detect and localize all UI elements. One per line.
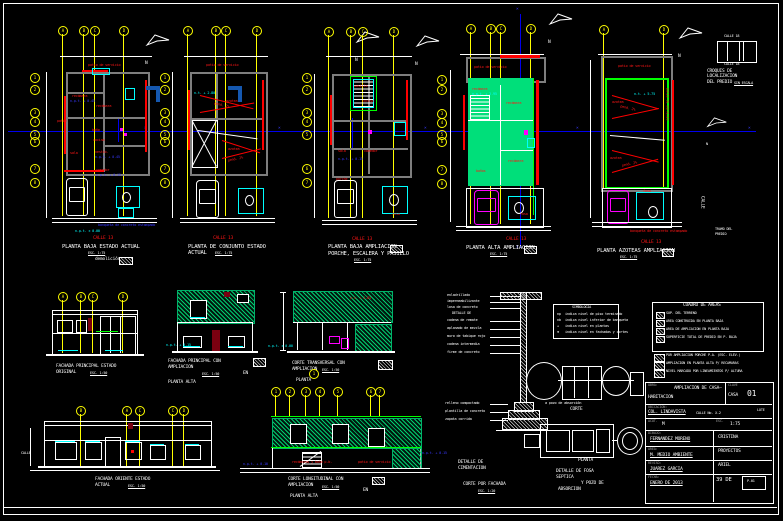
row-divider [645, 430, 772, 431]
sill-line [190, 317, 205, 318]
grid-bubble: A [324, 27, 334, 37]
grid-bubble: C [496, 24, 506, 34]
scale-value: 1:75 [730, 423, 740, 428]
wall-line [463, 95, 465, 150]
hatch-swatch [119, 257, 133, 265]
wall-demolish [188, 90, 190, 150]
elevation-title: ORIGINAL [56, 371, 76, 376]
area-table-title: CUADRO DE AREAS [683, 304, 721, 309]
sheet-count: 39 DE [716, 478, 732, 484]
arrow-line [96, 331, 118, 332]
street-label: CALLE 13 [506, 238, 526, 243]
field-label: OBRA: [648, 384, 658, 388]
grid-bubble: 4 [302, 117, 312, 127]
annotation: muro de tabique rojo [447, 335, 485, 339]
wall-demolish [262, 80, 264, 150]
grid-bubble: D [389, 27, 399, 37]
beam [224, 292, 230, 297]
cell-divider [713, 430, 714, 502]
area-row: AREA CONSTRUIDA EN PLANTA BAJA [666, 320, 723, 324]
field-label: DIBUJO: [648, 432, 661, 436]
elevation-title: FACHADA PRINCIPAL ESTADO [56, 365, 116, 370]
roof-line [52, 310, 138, 311]
wall-line [120, 316, 121, 353]
section-scale: ESC. 1:50 [322, 369, 339, 373]
street-line [456, 226, 551, 227]
area-row: SUP. DEL TERRENO [666, 312, 697, 316]
grid-bubble: 7 [30, 164, 40, 174]
dim-line [314, 74, 315, 218]
plan-title: ACTUAL [188, 251, 207, 257]
legend-key: ⊕ [557, 331, 559, 335]
wall-hatch [521, 292, 526, 402]
elevation-scale: ESC. 1:50 [128, 485, 145, 489]
sketch-line [743, 41, 744, 61]
room-label: azotea [610, 157, 621, 161]
field-label: CLAVE [728, 384, 738, 388]
ground-line [287, 351, 395, 353]
annotation: zapata corrida [445, 418, 472, 422]
department: M. MEDIO AMBIENTE [650, 454, 693, 459]
area-swatch [656, 328, 665, 335]
north-label: N [355, 58, 358, 63]
plan-title: PLANTA BAJA ESTADO ACTUAL [62, 245, 140, 251]
wall-line [322, 323, 323, 350]
grid-bubble: 1 [302, 73, 312, 83]
section-title: AMPLIACION [288, 484, 313, 489]
wall-line [297, 323, 298, 350]
pozo-circle-inner [622, 432, 638, 450]
area-swatch [654, 354, 665, 362]
fosa-label: fosa [392, 213, 400, 217]
grid-line [328, 35, 329, 218]
grid-bubble: 8 [30, 178, 40, 188]
grid-line [319, 395, 320, 416]
grid-bubble: 5 [333, 387, 343, 397]
grid-line [379, 395, 380, 416]
furniture [329, 336, 340, 344]
wall-line [500, 55, 540, 58]
street-line [322, 224, 417, 225]
grid-bubble: A [183, 26, 193, 36]
grid-bubble: B [76, 292, 86, 302]
ground-line [172, 351, 258, 353]
window [55, 442, 77, 460]
sheet-border-line [4, 507, 777, 508]
legend-text: indica nivel en plantas [565, 325, 609, 329]
floor-line [177, 322, 253, 323]
grid-bubble: D [119, 26, 129, 36]
grid-bubble: C [168, 406, 178, 416]
person-name: CRISTINA [718, 436, 738, 441]
north-label: N [706, 142, 708, 146]
tag: PLANTA ALTA [290, 495, 318, 500]
grid-bubble: 8 [437, 179, 447, 189]
leader-line [490, 337, 520, 338]
section-title: CORTE TRANSVERSAL CON [292, 362, 345, 367]
grid-line [305, 395, 306, 416]
room-label: baños [476, 170, 486, 174]
detail-title: SEPTICA [556, 476, 574, 481]
grid-bubble: 6 [160, 137, 170, 147]
leader-line [490, 404, 508, 405]
tank-line [588, 366, 589, 398]
hatch-swatch [253, 358, 266, 367]
north-label: N [145, 61, 148, 66]
grid-bubble: 4 [315, 387, 325, 397]
annotation: cadena de remate [447, 319, 478, 323]
grid-bubble: 1 [160, 73, 170, 83]
grid-bubble: 5 [302, 130, 312, 140]
room-label: azotea [228, 148, 239, 152]
sill-line [58, 350, 78, 351]
field-label: ESC. [716, 420, 724, 424]
leader-line [490, 321, 520, 322]
street-label: CALLE 13 [641, 241, 661, 246]
detail-scale: ESC. 1:20 [478, 490, 495, 494]
fixture-marker [120, 128, 123, 131]
sketch-line [739, 41, 740, 61]
plan-scale: ESC. 1:75 [620, 256, 637, 260]
tag: PLANTA ALTA [168, 381, 196, 386]
grid-bubble: 1 [30, 73, 40, 83]
room-label: baño [92, 129, 100, 133]
sheet-number: 01 [747, 390, 756, 398]
wall-line [66, 117, 146, 119]
room-label: recámara [508, 160, 523, 164]
door [88, 318, 92, 331]
window [185, 445, 201, 460]
sill-line [150, 444, 164, 445]
room-label: patio de servicio [474, 66, 506, 70]
project-title: HABITACION [648, 396, 673, 401]
legend-key: np [557, 313, 561, 317]
level-label: n.p.t. + 0.15 [338, 158, 363, 162]
street-line [180, 218, 275, 219]
wall-line [330, 95, 332, 145]
toilet [245, 195, 254, 206]
street-label: CALLE 13 [352, 238, 372, 243]
elevation-title: FACHADA ORIENTE ESTADO [95, 478, 150, 483]
cell-divider [725, 382, 726, 404]
wall-panel [237, 294, 249, 303]
area-row: NIVEL MARCADO POR LINEAMIENTOS P/ ALTURA [666, 370, 742, 374]
north-arrow-icon: N [706, 116, 728, 149]
grid-bubble: D [252, 26, 262, 36]
tank-section [630, 372, 644, 396]
grid-line [370, 395, 371, 416]
car [66, 178, 88, 216]
window [150, 445, 166, 460]
fixture [527, 138, 535, 148]
north-arrow-icon: N [678, 26, 704, 61]
street-line [592, 222, 682, 223]
location-value: COL. LINDAVISTA [648, 411, 686, 416]
elevation-scale: ESC. 1:50 [202, 373, 219, 377]
grid-bubble: C [221, 26, 231, 36]
ground-line [38, 466, 216, 468]
plan-scale: ESC. 1:75 [490, 253, 507, 257]
legend-text: indica nivel en fachadas y cortes [565, 331, 628, 335]
room-label: patio de servicio [618, 65, 650, 69]
level-label: n.p.t. ± 0.00 [75, 230, 100, 234]
sidewalk-label: banqueta de concreto estampado [98, 224, 155, 228]
level-label: n.p.t. + 0.45 [70, 100, 95, 104]
annotation: aplanado de mezcla [447, 327, 481, 331]
window [85, 442, 102, 460]
row-divider [645, 446, 772, 447]
section-title: CORTE LONGITUDINAL CON [288, 478, 343, 483]
note: PREDIO [715, 233, 726, 237]
tag: PLANTA [296, 379, 311, 384]
annotation: firme de concreto [447, 351, 479, 355]
grid-bubble: 6 [302, 164, 312, 174]
wall-line [406, 80, 408, 140]
fixture [394, 122, 406, 136]
property-line [184, 56, 268, 57]
street-label: CALLE [21, 452, 31, 456]
hatch-swatch [662, 249, 674, 257]
legend-key: nb [557, 319, 561, 323]
view-label: CORTE [570, 408, 583, 413]
grid-bubble: A [599, 25, 609, 35]
wall-line [672, 80, 674, 185]
area-swatch [654, 362, 665, 370]
annotation: cadena intermedia [447, 343, 479, 347]
tank-line [574, 366, 575, 398]
ampliacion-hatch [355, 324, 392, 352]
annotation: enladrillado [447, 294, 470, 298]
parapet-line [44, 421, 212, 422]
row-divider [645, 460, 772, 461]
project-title: AMPLIACION DE CASA— [674, 387, 722, 392]
dim-line [283, 292, 284, 351]
sheet-code: CASA [728, 394, 738, 399]
field-label: ACOT. [648, 420, 658, 424]
street-label: CALLE 13 [213, 237, 233, 242]
field-label: AREA: [648, 448, 658, 452]
wall-line [272, 448, 273, 468]
hatch-swatch [372, 477, 385, 485]
grid-bubble: 6 [437, 137, 447, 147]
wall-line [110, 316, 111, 353]
room-label: comedor [364, 150, 377, 154]
fixture-marker [368, 130, 372, 134]
tag: EN [363, 489, 368, 494]
sill-line [85, 441, 100, 442]
cad-sheet: × × × × × × × N N N N N N A B C D 1 2 3 … [0, 0, 783, 521]
annotation: relleno compactado [445, 402, 479, 406]
elevation-title: AMPLIACION [168, 366, 193, 371]
door [212, 330, 220, 351]
room-label: recámara [96, 105, 111, 109]
area-swatch [656, 336, 665, 343]
grid-bubble: A [466, 24, 476, 34]
room-label: patio de servicio [88, 64, 120, 68]
street-line [52, 218, 157, 219]
sketch-title: DEL PREDIO [707, 81, 732, 86]
sill-line [228, 346, 243, 347]
field-label: REVISO: [648, 462, 661, 466]
sketch-block [717, 41, 757, 63]
wall-line [103, 145, 146, 147]
fence-line [30, 428, 31, 466]
grid-bubble: 2 [285, 387, 295, 397]
wall-line [137, 310, 138, 354]
vent [128, 423, 133, 429]
grid-bubble: 4 [437, 118, 447, 128]
plan-title: PLANTA BAJA AMPLIACION [328, 245, 396, 251]
grid-bubble: 4 [160, 117, 170, 127]
room-label: sala [338, 150, 346, 154]
area-row: AREA DE AMPLIACION EN PLANTA BAJA [666, 328, 729, 332]
legend-title: SIMBOLOGIA [572, 306, 591, 310]
level-label: n.t. + 5.75 [634, 93, 655, 97]
leader-line [490, 345, 520, 346]
level-label: n.p.t. + 0.10 [243, 463, 268, 467]
grid-bubble: 1 [271, 387, 281, 397]
side-label: patio de servicio [665, 88, 669, 168]
wall-line [211, 421, 212, 468]
department: PROYECTOS [718, 450, 741, 455]
plan-scale: ESC. 1:75 [354, 259, 371, 263]
leader-line [490, 329, 520, 330]
north-arrow-icon: N [548, 12, 574, 47]
grid-bubble: 2 [160, 85, 170, 95]
roof-line [52, 314, 138, 315]
plan-note: demolición [95, 258, 120, 263]
dim-tick [280, 292, 286, 293]
area-row: AMPLIACION EN PLANTA ALTA P/ RECAMARAS [666, 362, 738, 366]
sketch-line [727, 41, 728, 61]
fixture [92, 68, 110, 75]
area-swatch [656, 312, 665, 319]
grid-bubble: 2 [437, 85, 447, 95]
grid-bubble: 1 [309, 369, 319, 379]
grid-bubble: A [122, 406, 132, 416]
north-label: N [678, 54, 681, 59]
view-label: PLANTA [578, 459, 593, 464]
window [57, 320, 73, 333]
property-line [598, 54, 672, 55]
room-label: cocina [93, 139, 104, 143]
grid-bubble: D [118, 292, 128, 302]
floor-line [293, 322, 391, 323]
stairs [470, 95, 490, 121]
fixture [118, 208, 134, 218]
wall-line [52, 310, 53, 354]
wall-line [216, 72, 218, 120]
grid-bubble: 7 [375, 387, 385, 397]
street-line [322, 220, 417, 221]
legend-text: indica nivel inferior de banqueta [565, 319, 628, 323]
ampliacion-hatch [293, 291, 393, 323]
grid-bubble: 7 [302, 178, 312, 188]
leader-line [490, 308, 520, 309]
north-label: N [415, 62, 418, 67]
room-label: recámaras y baño p.b. [292, 461, 332, 465]
sill-line [105, 350, 123, 351]
street-label: CALLE [699, 196, 704, 236]
grid-bubble: C [358, 27, 368, 37]
stamp-text: P-01 [747, 480, 755, 484]
tank-plan-inner [546, 430, 570, 452]
marker [131, 450, 134, 453]
field-label: FECHA: [648, 476, 659, 480]
annotation: plantilla de concreto [445, 410, 485, 414]
street-label: CALLE 18 [724, 35, 739, 39]
plan-scale: ESC. 1:75 [88, 252, 105, 256]
grid-bubble: B [79, 26, 89, 36]
car [334, 180, 357, 218]
level-label: n.p.t. + 2.95 [472, 93, 497, 97]
grid-bubble: B [486, 24, 496, 34]
fixture-marker [124, 133, 127, 136]
tank-plan-inner [572, 430, 594, 452]
ground-line [30, 470, 220, 471]
slab-line [271, 416, 421, 417]
location-value: CALLE No. X-2 [696, 412, 721, 416]
detail-title: ABSORCION [558, 488, 581, 493]
annotation: DETALLE DE [452, 312, 471, 316]
elevation-scale: ESC. 1:50 [90, 372, 107, 376]
plumbing-line [238, 90, 242, 102]
sill-line [185, 444, 199, 445]
car [607, 190, 629, 224]
date-value: ENERO DE 2013 [650, 482, 683, 487]
units-value: M [662, 423, 665, 428]
level-label: n.t. + 2.85 [350, 297, 371, 301]
row-divider [645, 474, 772, 475]
room-label: patio de servicio [206, 64, 238, 68]
wall-demolish [64, 96, 66, 154]
window [368, 428, 385, 447]
dim-line [590, 60, 591, 218]
sketch-title: LOCALIZACION [707, 75, 737, 80]
street-line [456, 230, 551, 231]
room-label: sala [70, 152, 78, 156]
street-line [180, 222, 275, 223]
leader-line [490, 302, 520, 303]
plan-title: PORCHE, ESCALERA Y PASILLO [328, 252, 409, 258]
toilet [648, 206, 658, 218]
person-name: JUAREZ GARCIA [650, 468, 683, 473]
dim-line [172, 72, 173, 218]
room-label: patio [57, 120, 67, 124]
detail-label: CIMENTACION [458, 467, 486, 472]
leader-line [490, 353, 520, 354]
wall-line [536, 80, 539, 185]
section-marker-icon: × [516, 8, 519, 13]
dim-line [46, 72, 47, 218]
grid-bubble: C [90, 26, 100, 36]
room-label: recámara [506, 102, 521, 106]
elevation-title: ACTUAL [95, 484, 110, 489]
fixture-marker [524, 130, 528, 135]
toilet [122, 192, 131, 203]
dim-line [450, 70, 451, 222]
north-arrow-icon: N [415, 34, 441, 69]
fixture [125, 88, 135, 100]
grid-bubble: D [179, 406, 189, 416]
grid-bubble: A [58, 26, 68, 36]
detail-label: DETALLE DE [458, 461, 483, 466]
level-label: n.p.t. + 0.15 [166, 344, 191, 348]
room-label: azotea [226, 100, 237, 104]
wall-demolish [145, 80, 147, 152]
street-line [592, 226, 682, 227]
street-label: CALLE 13 [93, 237, 113, 242]
